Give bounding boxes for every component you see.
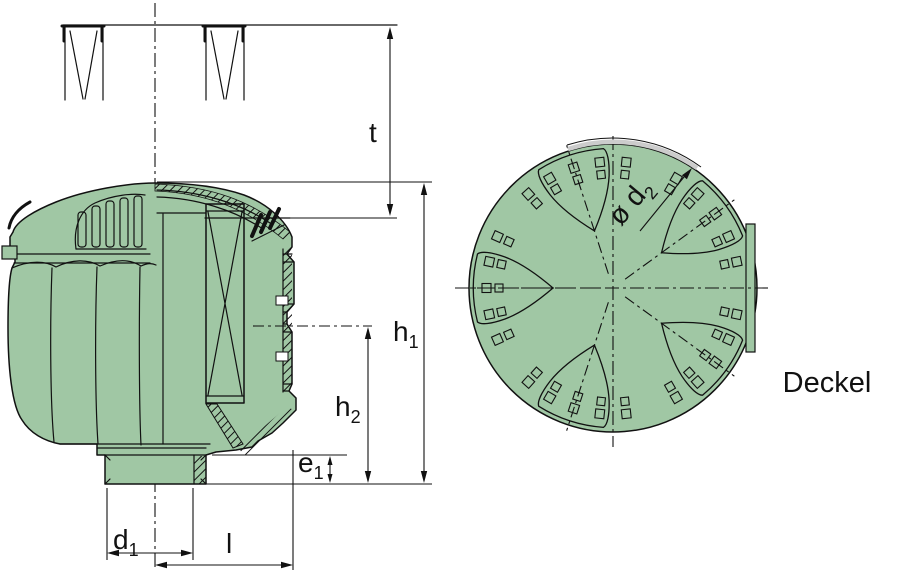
technical-drawing: t h1 h2 e1 xyxy=(0,0,900,573)
cover-top-view: ø d2 Deckel xyxy=(455,128,871,449)
dim-label-e1: e1 xyxy=(298,447,324,483)
dim-h2: h2 xyxy=(335,327,371,483)
dim-label-l: l xyxy=(226,528,232,559)
side-section-view xyxy=(2,183,372,484)
dim-label-h2: h2 xyxy=(335,391,361,427)
deckel-label: Deckel xyxy=(783,367,872,399)
dim-t: t xyxy=(290,27,397,218)
dim-label-t: t xyxy=(369,117,377,148)
dim-e1: e1 xyxy=(206,447,432,484)
dim-d1: d1 xyxy=(107,488,193,560)
dim-label-h1: h1 xyxy=(393,316,419,352)
dim-label-d1: d1 xyxy=(113,524,139,560)
vane-profile-detail xyxy=(62,25,397,100)
drawing-canvas: t h1 h2 e1 xyxy=(0,0,900,573)
